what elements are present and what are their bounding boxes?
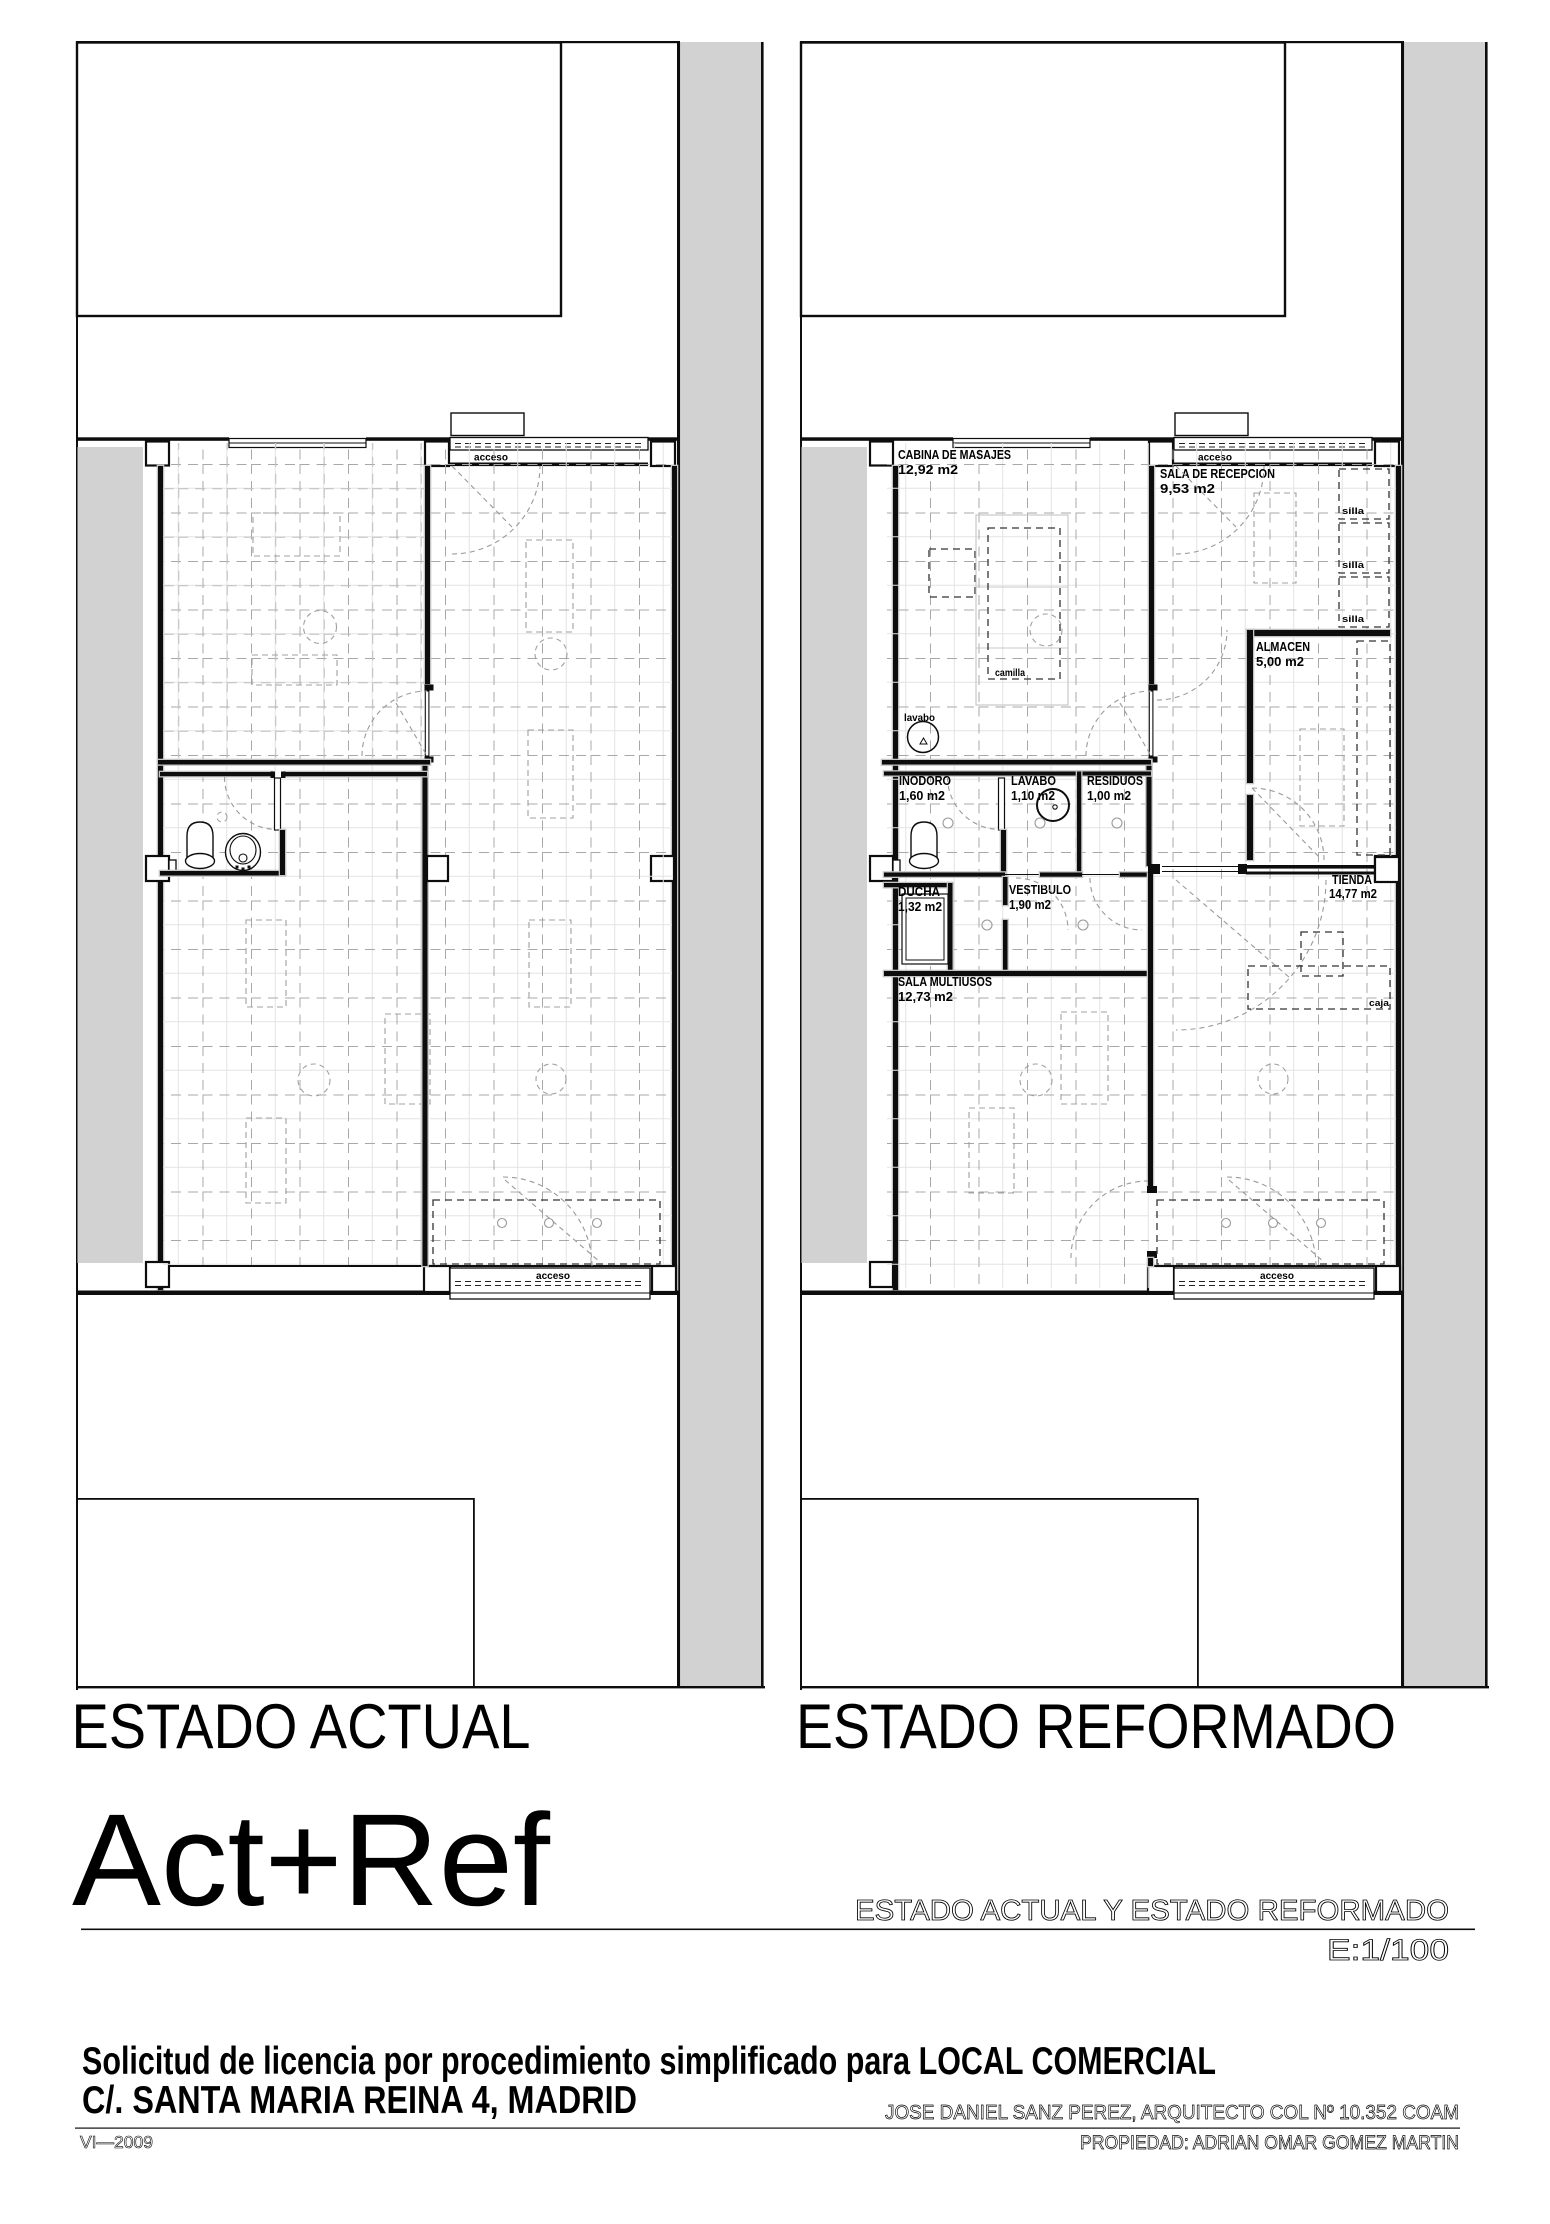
svg-text:silla: silla <box>1342 506 1365 516</box>
svg-text:1,90 m2: 1,90 m2 <box>1009 897 1051 912</box>
svg-text:1,32 m2: 1,32 m2 <box>898 899 942 914</box>
svg-text:VESTIBULO: VESTIBULO <box>1009 882 1071 897</box>
svg-text:ESTADO ACTUAL Y ESTADO REF: ESTADO ACTUAL Y ESTADO REFORMADO <box>855 1895 1449 1927</box>
svg-text:VI—2009: VI—2009 <box>80 2132 153 2152</box>
svg-text:DUCHA: DUCHA <box>898 884 941 899</box>
svg-text:SALA MULTIUSOS: SALA MULTIUSOS <box>898 974 992 989</box>
svg-text:Solicitud de licencia por proc: Solicitud de licencia por procedimiento … <box>82 2040 1216 2083</box>
svg-text:CABINA DE MASAJES: CABINA DE MASAJES <box>898 447 1011 462</box>
svg-text:12,73 m2: 12,73 m2 <box>898 989 953 1004</box>
svg-text:ESTADO REFORMADO: ESTADO REFORMADO <box>796 1692 1396 1762</box>
svg-text:TIENDA: TIENDA <box>1332 872 1373 887</box>
svg-text:camilla: camilla <box>995 668 1025 679</box>
svg-text:RESIDUOS: RESIDUOS <box>1087 773 1143 788</box>
svg-text:1,00 m2: 1,00 m2 <box>1087 788 1131 803</box>
svg-text:1,60 m2: 1,60 m2 <box>899 788 945 803</box>
svg-text:INODORO: INODORO <box>899 773 951 788</box>
svg-text:5,00 m2: 5,00 m2 <box>1256 654 1304 669</box>
svg-text:caja: caja <box>1369 998 1390 1009</box>
svg-text:E:1/100: E:1/100 <box>1327 1934 1449 1967</box>
svg-text:silla: silla <box>1342 560 1365 570</box>
svg-text:14,77 m2: 14,77 m2 <box>1329 886 1377 901</box>
svg-text:LAVABO: LAVABO <box>1011 773 1056 788</box>
svg-text:silla: silla <box>1342 614 1365 624</box>
svg-text:SALA DE RECEPCION: SALA DE RECEPCION <box>1160 466 1275 481</box>
svg-text:ESTADO ACTUAL: ESTADO ACTUAL <box>72 1692 531 1762</box>
svg-text:C/. SANTA MARIA REINA 4, MADRI: C/. SANTA MARIA REINA 4, MADRID <box>82 2079 637 2122</box>
svg-text:Act+Ref: Act+Ref <box>72 1786 551 1933</box>
svg-text:acceso: acceso <box>536 1271 570 1282</box>
svg-text:12,92 m2: 12,92 m2 <box>898 462 958 477</box>
svg-text:acceso: acceso <box>1260 1271 1294 1282</box>
svg-text:PROPIEDAD: ADRIAN OMAR GOME: PROPIEDAD: ADRIAN OMAR GOMEZ MARTIN <box>1080 2133 1459 2154</box>
svg-text:JOSE DANIEL SANZ PEREZ, AR: JOSE DANIEL SANZ PEREZ, ARQUITECTO COL N… <box>885 2101 1459 2124</box>
svg-text:9,53 m2: 9,53 m2 <box>1160 481 1215 496</box>
svg-text:ALMACEN: ALMACEN <box>1256 639 1310 654</box>
